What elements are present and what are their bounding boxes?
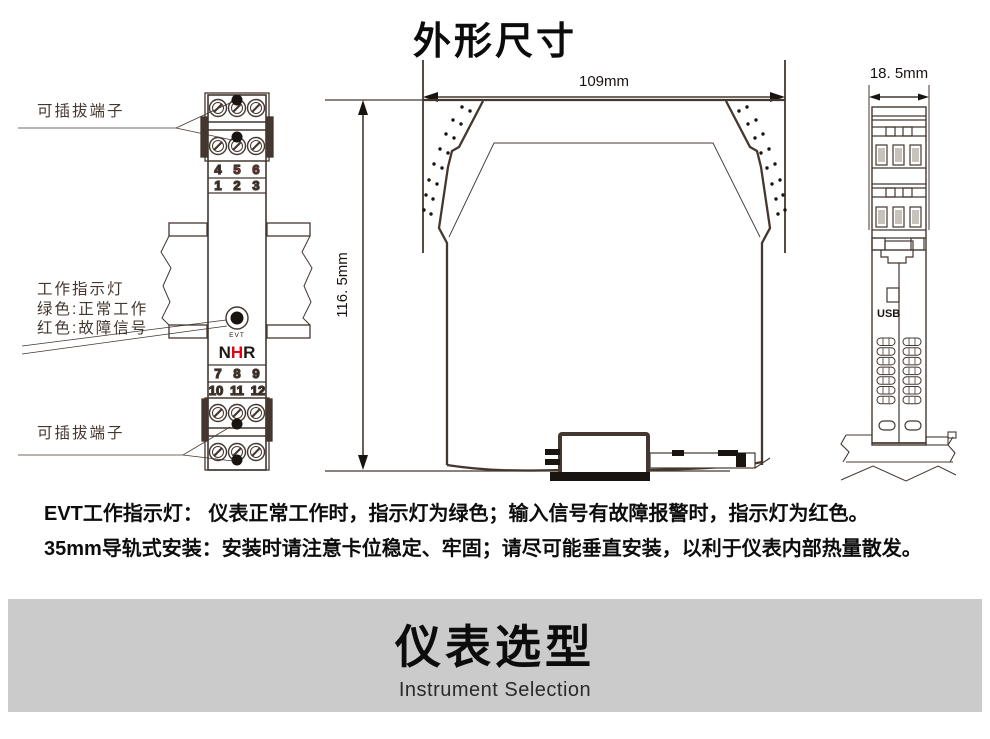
banner-title: 仪表选型: [8, 611, 982, 677]
side-view: 109mm 116. 5mm: [325, 60, 787, 481]
dim-depth-label: 18. 5mm: [870, 65, 928, 82]
terminal-block-bottom: [202, 398, 272, 470]
dim-height: 116. 5mm: [325, 100, 730, 471]
nhr-logo: NHR: [219, 343, 256, 362]
terminal-number: 9: [252, 366, 259, 381]
din-clip: [545, 434, 770, 481]
usb-label: USB: [877, 308, 900, 320]
front-view: 4 5 6 1 2 3 EVT NHR 7 8 9: [18, 93, 312, 470]
terminal-numbers-top: 4 5 6 1 2 3: [208, 161, 266, 193]
dim-depth: 18. 5mm: [869, 65, 929, 230]
terminal-number: 7: [214, 366, 221, 381]
terminal-number: 12: [251, 383, 265, 398]
end-lower-body: USB: [877, 250, 921, 443]
dimension-drawing: 4 5 6 1 2 3 EVT NHR 7 8 9: [0, 0, 990, 495]
terminal-number: 6: [252, 162, 259, 177]
section-banner: 仪表选型 Instrument Selection: [8, 599, 982, 712]
dim-height-label: 116. 5mm: [334, 252, 351, 318]
terminal-block-top: [201, 93, 273, 161]
dim-width-label: 109mm: [579, 73, 629, 90]
housing-outline: [423, 100, 785, 470]
end-view: 18. 5mm: [841, 65, 956, 481]
note-rail-mounting: 35mm导轨式安装：安装时请注意卡位稳定、牢固；请尽可能垂直安装，以利于仪表内部…: [44, 532, 974, 567]
terminal-number: 5: [233, 162, 240, 177]
spec-sheet: 外形尺寸 可插拔端子 工作指示灯 绿色:正常工作 红色:故障信号 可插拔端子: [0, 0, 990, 739]
terminal-number: 2: [233, 178, 240, 193]
terminal-numbers-bottom: 7 8 9 10 11 12: [208, 365, 266, 398]
evt-label: EVT: [229, 332, 245, 339]
usb-port: [887, 288, 899, 302]
evt-indicator: EVT: [226, 307, 248, 339]
terminal-number: 3: [252, 178, 259, 193]
dim-width: 109mm: [423, 60, 785, 253]
terminal-number: 4: [214, 162, 222, 177]
banner-subtitle: Instrument Selection: [8, 679, 982, 702]
vent-dots: [422, 105, 786, 215]
note-evt-indicator: EVT工作指示灯： 仪表正常工作时，指示灯为绿色；输入信号有故障报警时，指示灯为…: [44, 497, 974, 532]
terminal-number: 11: [230, 383, 244, 398]
end-terminal-area: [872, 116, 926, 250]
notes: EVT工作指示灯： 仪表正常工作时，指示灯为绿色；输入信号有故障报警时，指示灯为…: [44, 497, 974, 567]
housing-inner-contour: [449, 143, 760, 237]
terminal-number: 10: [209, 383, 223, 398]
terminal-number: 8: [233, 366, 240, 381]
terminal-number: 1: [214, 178, 221, 193]
